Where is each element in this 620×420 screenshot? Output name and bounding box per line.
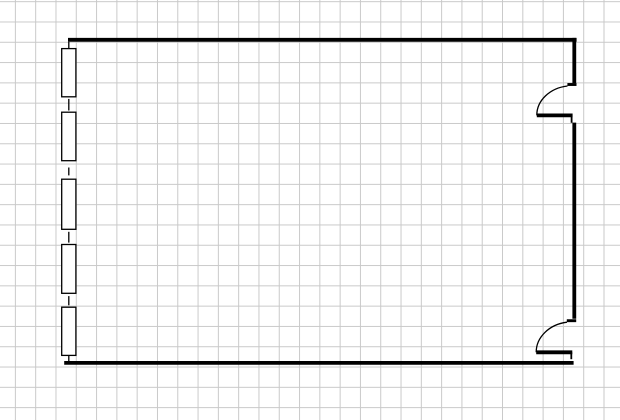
door-swing-arc — [536, 322, 567, 352]
window-shape[interactable] — [62, 112, 76, 161]
window-shape[interactable] — [62, 49, 76, 97]
window-shape[interactable] — [62, 307, 76, 355]
drawing-canvas[interactable] — [0, 0, 620, 420]
window-shape[interactable] — [62, 179, 76, 229]
door-swing-arc — [537, 86, 568, 115]
floor-plan-svg — [0, 0, 620, 420]
door-bottom-right[interactable] — [536, 321, 576, 360]
window-shape[interactable] — [62, 245, 76, 294]
door-top-right[interactable] — [537, 85, 577, 123]
